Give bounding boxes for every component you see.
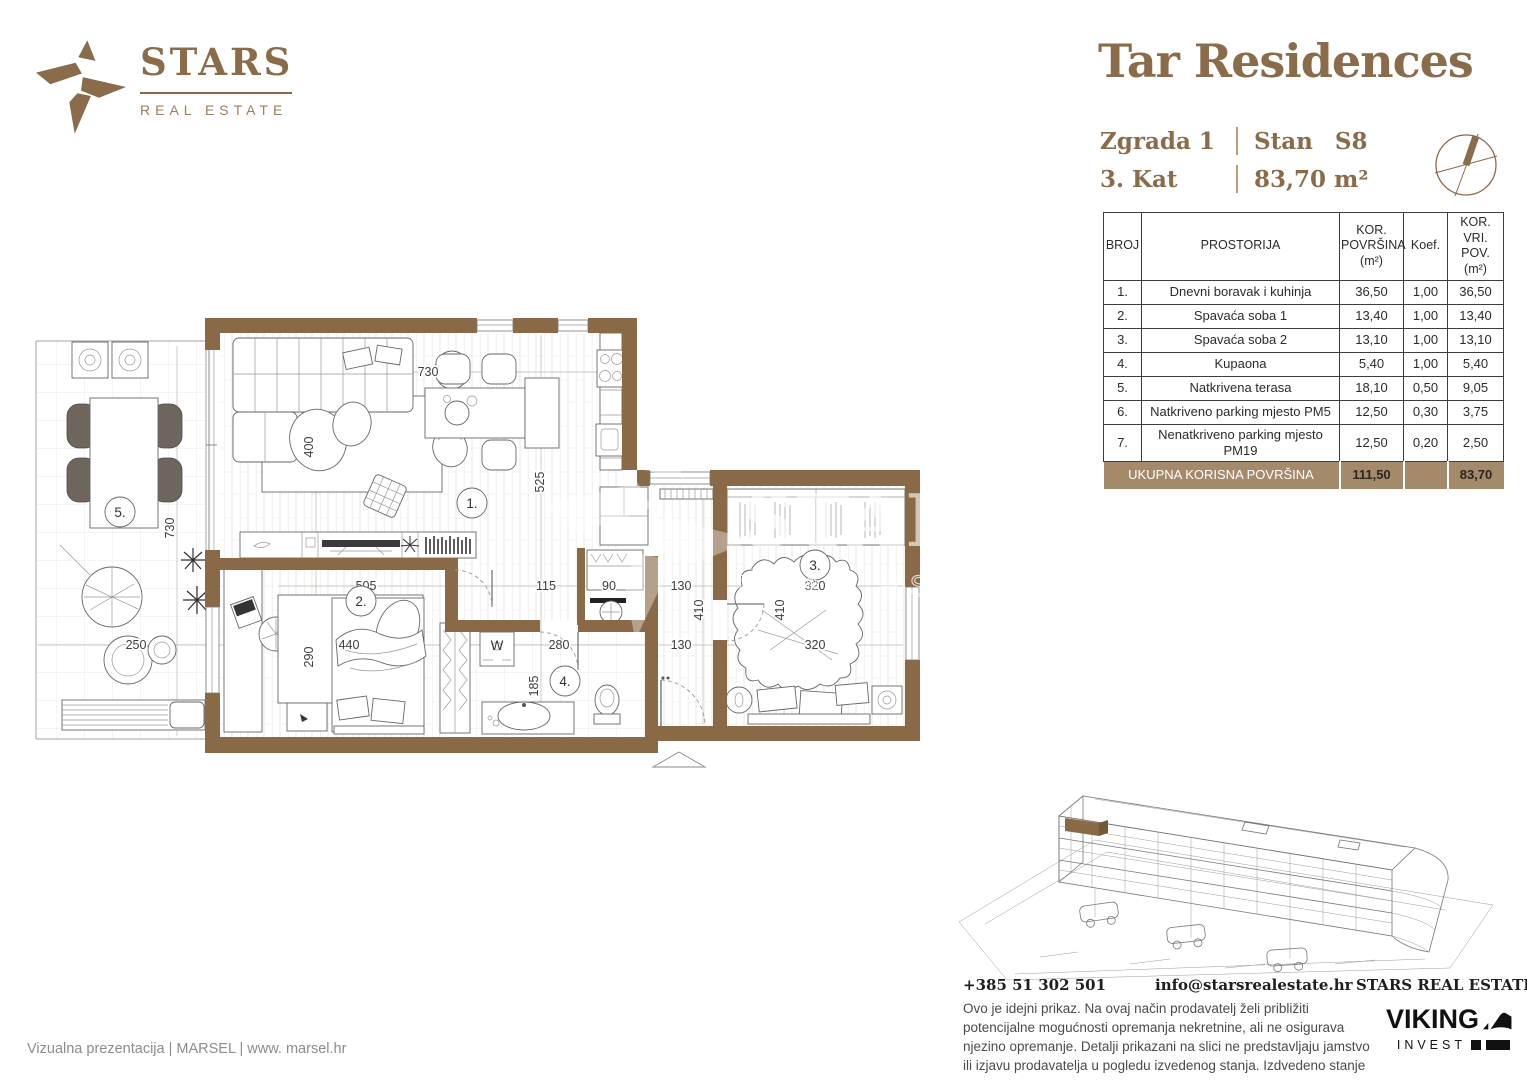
logo-subtext: REAL ESTATE [140, 102, 293, 118]
table-row: 4.Kupaona5,401,005,40 [1104, 352, 1504, 376]
table-cell: 13,40 [1340, 304, 1404, 328]
table-cell: 36,50 [1448, 280, 1504, 304]
svg-text:400: 400 [302, 437, 316, 458]
unit-value: S8 [1335, 128, 1368, 155]
table-cell: Natkriveno parking mjesto PM5 [1142, 400, 1340, 424]
svg-text:525: 525 [533, 472, 547, 493]
viking-name: VIKING [1386, 1004, 1479, 1035]
phone: +385 51 302 501 [963, 976, 1106, 994]
divider [1236, 165, 1238, 193]
table-cell: 1,00 [1404, 280, 1448, 304]
column-header: PROSTORIJA [1142, 213, 1340, 281]
viking-invest-logo: VIKING INVEST [1386, 1004, 1512, 1052]
table-cell: 3,75 [1448, 400, 1504, 424]
table-cell: 5. [1104, 376, 1142, 400]
table-cell: Spavaća soba 2 [1142, 328, 1340, 352]
table-cell: 5,40 [1448, 352, 1504, 376]
svg-text:250: 250 [126, 638, 147, 652]
table-cell: 1,00 [1404, 304, 1448, 328]
unit-info: Zgrada 1 Stan S8 3. Kat 83,70 m² [1100, 122, 1368, 198]
table-cell: 1,00 [1404, 352, 1448, 376]
building-label: Zgrada 1 [1100, 128, 1220, 155]
stove [597, 350, 624, 387]
tv [322, 540, 400, 547]
table-row: 1.Dnevni boravak i kuhinja36,501,0036,50 [1104, 280, 1504, 304]
compass-icon [1430, 128, 1502, 202]
table-cell: 3. [1104, 328, 1142, 352]
table-cell: 12,50 [1340, 400, 1404, 424]
table-cell: 13,40 [1448, 304, 1504, 328]
svg-text:130: 130 [671, 579, 692, 593]
unit-label: Stan [1254, 128, 1313, 155]
column-header: Koef. [1404, 213, 1448, 281]
svg-text:115: 115 [536, 579, 556, 593]
star-icon [36, 40, 126, 134]
sideboard [240, 532, 476, 558]
table-cell: Natkrivena terasa [1142, 376, 1340, 400]
svg-text:W: W [491, 638, 504, 653]
table-row: 6.Natkriveno parking mjesto PM512,500,30… [1104, 400, 1504, 424]
svg-text:5.: 5. [114, 505, 125, 520]
total-value: 83,70 [1448, 462, 1504, 489]
stars-logo: STARS REAL ESTATE [36, 40, 293, 134]
svg-text:320: 320 [805, 638, 826, 652]
viking-icon [1483, 1004, 1512, 1042]
table-row: 7.Nenatkriveno parking mjesto PM1912,500… [1104, 424, 1504, 462]
column-header: KOR.POVRŠINA(m²) [1340, 213, 1404, 281]
table-cell: 2,50 [1448, 424, 1504, 462]
visual-credit: Vizualna prezentacija | MARSEL | www. ma… [27, 1041, 346, 1057]
column-header: KOR.VRI. POV.(m²) [1448, 213, 1504, 281]
table-cell: 12,50 [1340, 424, 1404, 462]
building-rendering [945, 752, 1520, 987]
table-cell: 6. [1104, 400, 1142, 424]
divider [1236, 127, 1238, 155]
unit-info-row-1: Zgrada 1 Stan S8 [1100, 122, 1368, 160]
svg-text:185: 185 [527, 676, 541, 697]
svg-text:4.: 4. [559, 674, 570, 689]
table-cell: 18,10 [1340, 376, 1404, 400]
total-koef-empty [1404, 462, 1448, 489]
table-cell: Nenatkriveno parking mjesto PM19 [1142, 424, 1340, 462]
email: info@starsrealestate.hr [1155, 976, 1353, 994]
table-cell: 9,05 [1448, 376, 1504, 400]
areas-table-total-row: UKUPNA KORISNA POVRŠINA 111,50 83,70 [1104, 462, 1504, 489]
table-row: 5.Natkrivena terasa18,100,509,05 [1104, 376, 1504, 400]
area-value: 83,70 m² [1254, 166, 1368, 193]
svg-text:440: 440 [339, 638, 360, 652]
table-cell: 4. [1104, 352, 1142, 376]
disclaimer: Ovo je idejni prikaz. Na ovaj način prod… [963, 999, 1375, 1080]
svg-text:REAL ESTATE: REAL ESTATE [738, 570, 970, 603]
logo-word: STARS [140, 40, 293, 84]
table-cell: 13,10 [1448, 328, 1504, 352]
toilet [595, 685, 619, 715]
table-cell: Kupaona [1142, 352, 1340, 376]
table-cell: 2. [1104, 304, 1142, 328]
table-cell: 1,00 [1404, 328, 1448, 352]
table-cell: 36,50 [1340, 280, 1404, 304]
svg-text:130: 130 [671, 638, 692, 652]
table-cell: Dnevni boravak i kuhinja [1142, 280, 1340, 304]
svg-text:90: 90 [602, 579, 616, 593]
areas-table: BROJPROSTORIJAKOR.POVRŠINA(m²)Koef.KOR.V… [1103, 212, 1504, 489]
table-cell: 0,20 [1404, 424, 1448, 462]
areas-table-header: BROJPROSTORIJAKOR.POVRŠINA(m²)Koef.KOR.V… [1104, 213, 1504, 281]
column-header: BROJ [1104, 213, 1142, 281]
viking-bar [1486, 1040, 1510, 1050]
cars [1079, 901, 1308, 972]
table-cell: 7. [1104, 424, 1142, 462]
table-cell: 1. [1104, 280, 1142, 304]
table-cell: 5,40 [1340, 352, 1404, 376]
entrance-arrow [653, 752, 705, 767]
svg-text:730: 730 [163, 518, 177, 539]
logo-rule [140, 92, 292, 94]
logo-text: STARS REAL ESTATE [140, 40, 293, 134]
page-title: Tar Residences [1098, 34, 1510, 88]
svg-text:410: 410 [692, 600, 706, 621]
table-row: 3.Spavaća soba 213,101,0013,10 [1104, 328, 1504, 352]
svg-text:280: 280 [549, 638, 570, 652]
floor-plan: W [30, 310, 970, 792]
terrace-slider [206, 350, 217, 550]
company: STARS REAL ESTATE d.o.o. [1356, 976, 1527, 994]
table-cell: 0,50 [1404, 376, 1448, 400]
brochure-page: STARS REAL ESTATE Tar Residences Zgrada … [0, 0, 1527, 1080]
total-label: UKUPNA KORISNA POVRŠINA [1104, 462, 1340, 489]
radiator [660, 489, 713, 499]
floor-label: 3. Kat [1100, 166, 1220, 193]
table-cell: Spavaća soba 1 [1142, 304, 1340, 328]
viking-subtext: INVEST [1397, 1038, 1466, 1052]
svg-text:730: 730 [418, 365, 439, 379]
svg-text:STARS: STARS [742, 478, 970, 563]
table-cell: 13,10 [1340, 328, 1404, 352]
table-row: 2.Spavaća soba 113,401,0013,40 [1104, 304, 1504, 328]
svg-text:1.: 1. [466, 496, 477, 511]
unit-info-row-2: 3. Kat 83,70 m² [1100, 160, 1368, 198]
svg-text:290: 290 [302, 647, 316, 668]
total-area: 111,50 [1340, 462, 1404, 489]
table-cell: 0,30 [1404, 400, 1448, 424]
viking-square [1471, 1040, 1481, 1050]
svg-text:2.: 2. [355, 594, 366, 609]
